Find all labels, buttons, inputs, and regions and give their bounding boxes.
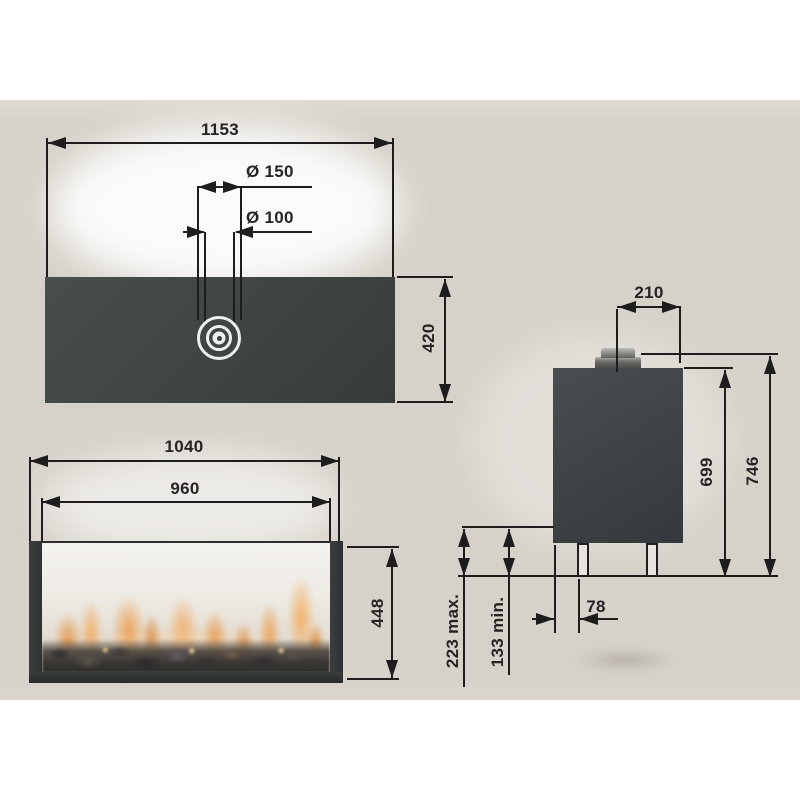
dim-line [444,279,446,401]
arrowhead-down [719,559,731,577]
arrowhead-down [386,660,398,678]
floor-shadow [575,648,675,672]
flue-outer-line [197,187,199,320]
flue-collar-base [595,357,641,369]
flue-outlet-ring [206,325,232,351]
dim-label: 210 [614,283,684,303]
front-view-left-frame [29,541,42,683]
dim-label: 746 [743,441,763,501]
underside-ref-line [462,526,554,528]
flue-center-line [616,309,618,372]
flue-outer-line [240,187,242,320]
flue-collar-top [601,348,635,358]
dim-line [508,529,510,675]
side-view-body [553,368,683,543]
arrowhead-left [42,496,60,508]
arrowhead-left [198,181,216,193]
arrowhead-up [764,356,776,374]
arrowhead-right [536,613,554,625]
dim-label: 699 [697,442,717,502]
arrowhead-right [187,226,205,238]
ext-line-top-699 [684,367,733,369]
flue-outlet-symbol [197,316,241,360]
dim-label: 133 min. [488,586,508,678]
front-view-base [29,672,343,683]
logs-image [42,639,330,673]
dim-line [41,501,331,503]
dim-line [769,356,771,577]
arrowhead-left [48,137,66,149]
flue-inner-line [233,232,235,325]
arrowhead-up [458,529,470,547]
dim-label: 1153 [185,120,255,140]
dim-line [463,529,465,687]
front-view-firebox [42,543,330,673]
dim-line [29,460,340,462]
ext-line [338,457,340,541]
ext-line-top-746 [641,353,778,355]
dim-label: 1040 [149,437,219,457]
dimension-drawing: 1153 Ø 150 Ø 100 420 [0,0,800,800]
arrowhead-down [458,558,470,576]
dim-line [47,142,393,144]
arrowhead-down [503,558,515,576]
front-leg [577,543,589,577]
ext-line [29,457,31,541]
arrowhead-right [374,137,392,149]
arrowhead-down [439,384,451,402]
arrowhead-down [764,559,776,577]
arrowhead-left [30,455,48,467]
arrowhead-right [312,496,330,508]
flue-outlet-disc [213,332,226,345]
rear-leg [646,543,658,577]
ext-line [392,138,394,277]
dim-label: 420 [419,308,439,368]
arrowhead-up [439,279,451,297]
arrowhead-right [223,181,241,193]
dim-label: 448 [368,583,388,643]
flue-inner-line [204,232,206,325]
front-view-right-frame [330,541,343,683]
ext-line [397,276,453,278]
arrowhead-up [503,529,515,547]
dim-line [391,549,393,678]
ext-line [347,546,399,548]
dim-label: Ø 100 [246,208,316,228]
arrowhead-up [719,370,731,388]
dim-label: Ø 150 [246,162,316,182]
dim-label: 960 [150,479,220,499]
dim-line [724,370,726,577]
dim-label: 78 [574,597,618,617]
dim-label: 223 max. [443,585,463,677]
ext-line [46,138,48,277]
ext-line [347,678,399,680]
ext-line [554,545,556,633]
flue-outlet-dot [217,336,222,341]
arrowhead-right [321,455,339,467]
arrowhead-up [386,549,398,567]
